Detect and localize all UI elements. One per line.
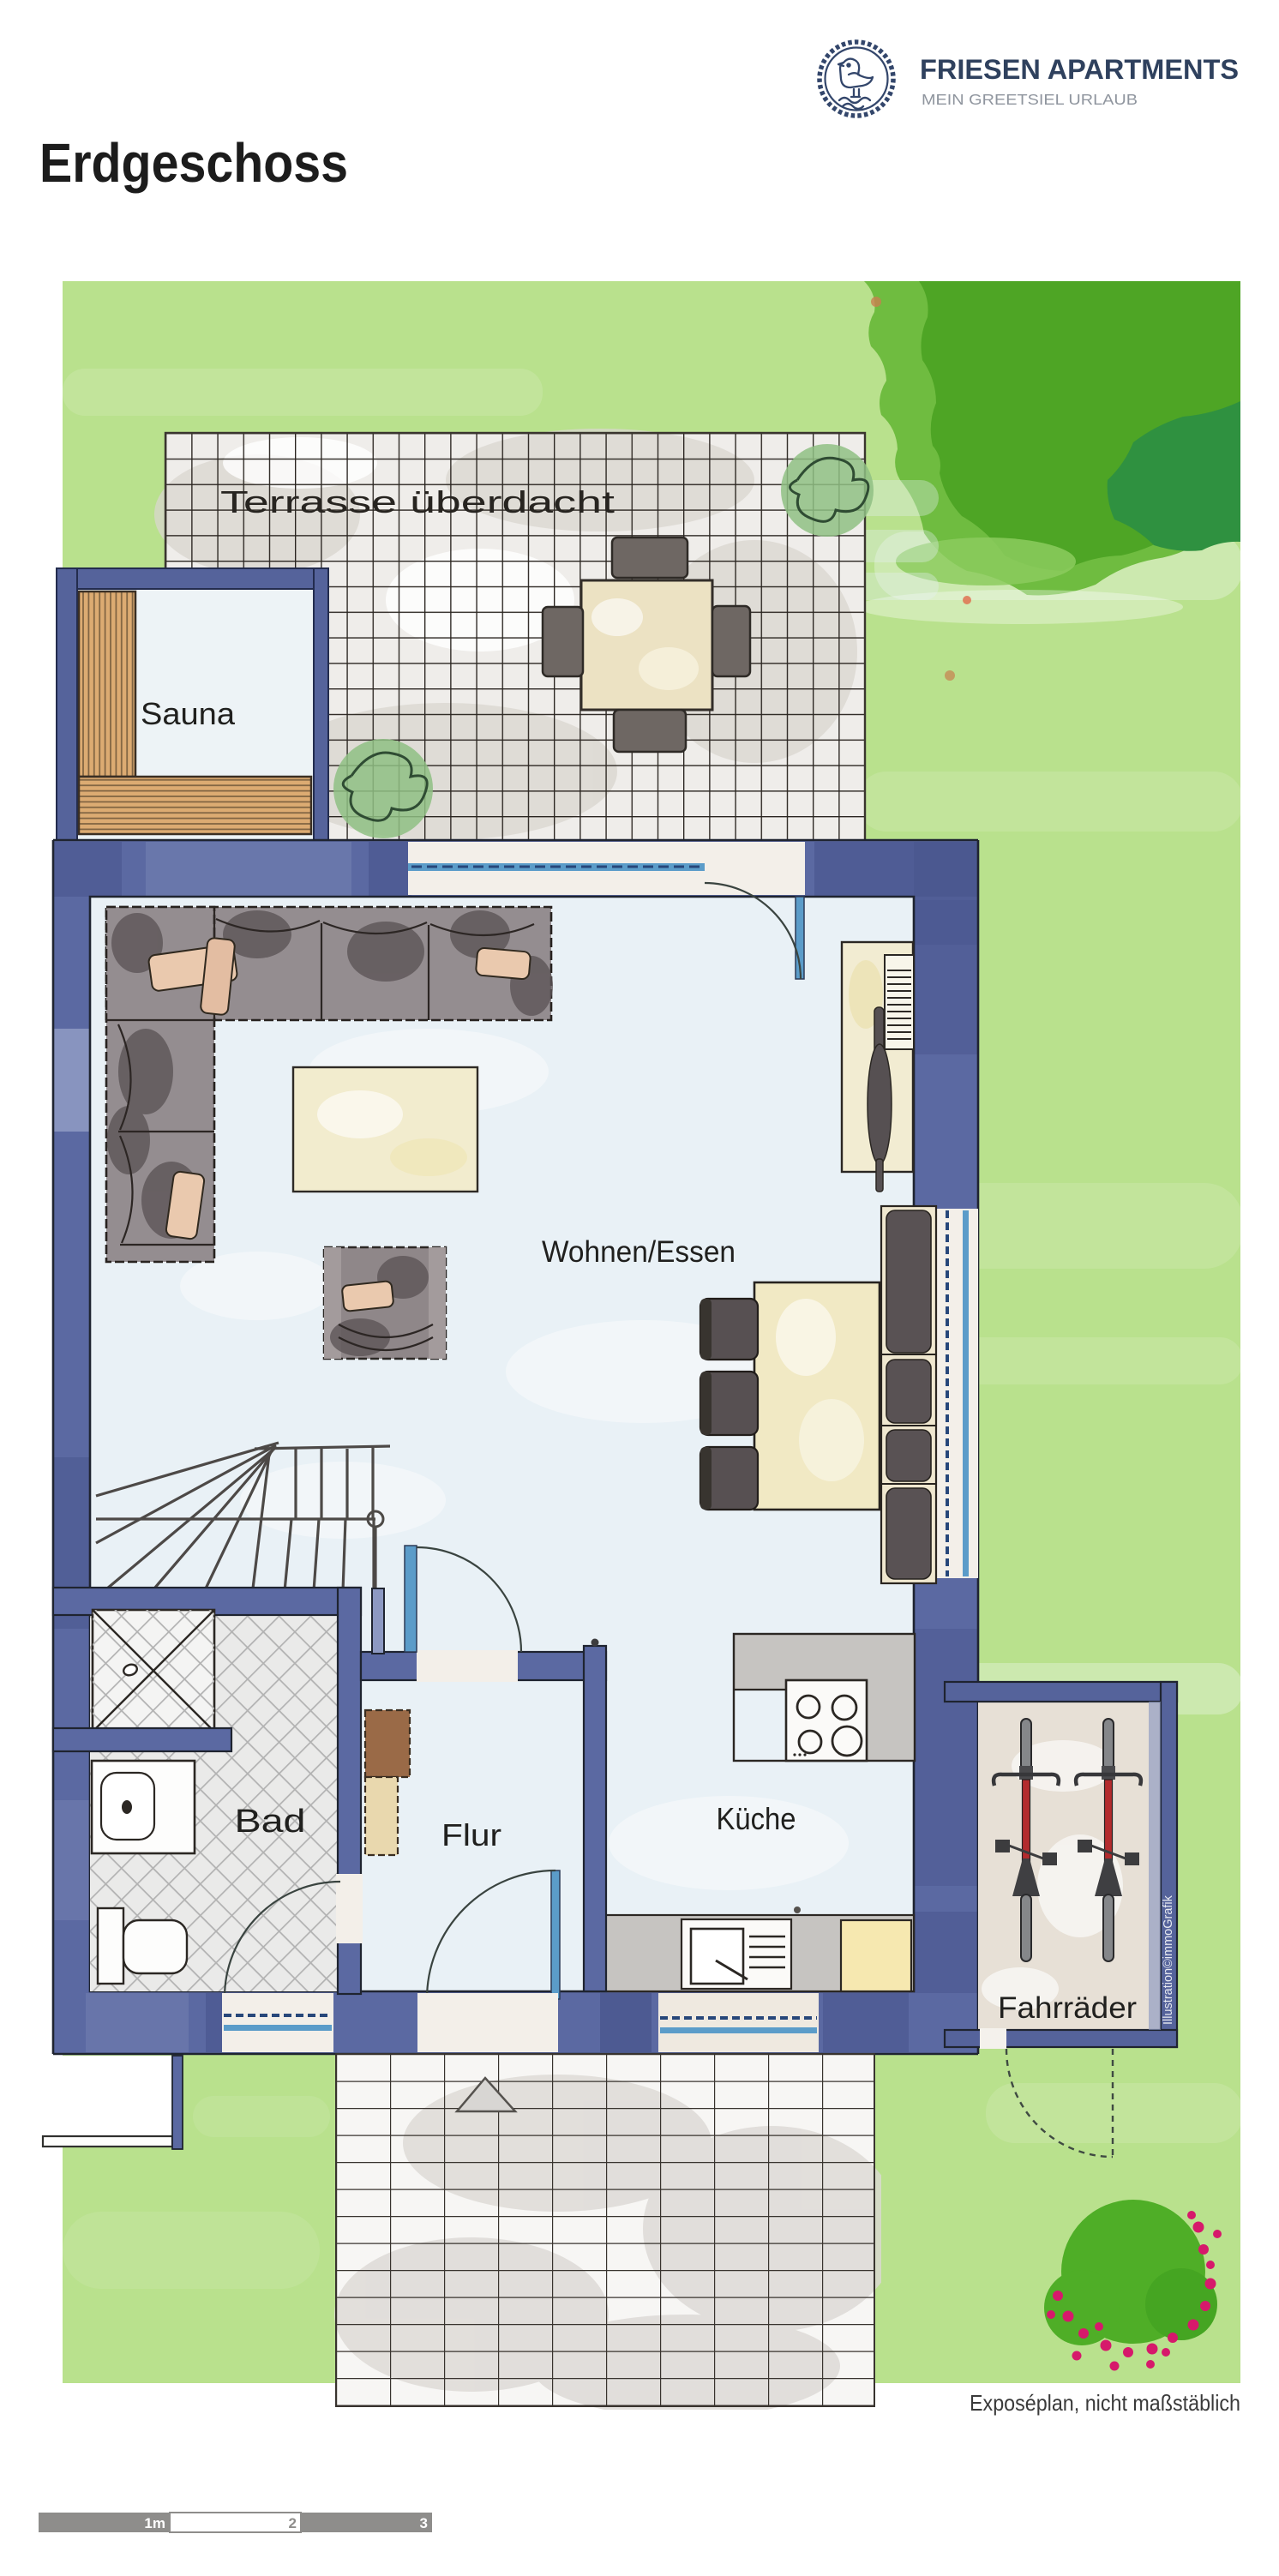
svg-text:Illustration©immoGrafik: Illustration©immoGrafik	[1162, 1894, 1175, 2025]
svg-text:MEIN GREETSIEL URLAUB: MEIN GREETSIEL URLAUB	[922, 91, 1138, 108]
svg-text:Sauna: Sauna	[141, 696, 236, 731]
svg-text:FRIESEN APARTMENTS: FRIESEN APARTMENTS	[920, 54, 1239, 85]
svg-text:Terrasse überdacht: Terrasse überdacht	[220, 484, 615, 519]
svg-text:Bad: Bad	[235, 1804, 306, 1840]
svg-text:Flur: Flur	[441, 1817, 501, 1852]
svg-text:Fahrräder: Fahrräder	[998, 1991, 1137, 2025]
svg-text:3: 3	[420, 2515, 428, 2531]
svg-text:Exposéplan, nicht maßstäblich: Exposéplan, nicht maßstäblich	[970, 2390, 1240, 2416]
svg-text:1m: 1m	[144, 2515, 165, 2531]
svg-text:Küche: Küche	[717, 1801, 796, 1836]
svg-text:Wohnen/Essen: Wohnen/Essen	[542, 1235, 736, 1269]
svg-text:Erdgeschoss: Erdgeschoss	[39, 132, 348, 194]
svg-text:2: 2	[289, 2515, 297, 2531]
